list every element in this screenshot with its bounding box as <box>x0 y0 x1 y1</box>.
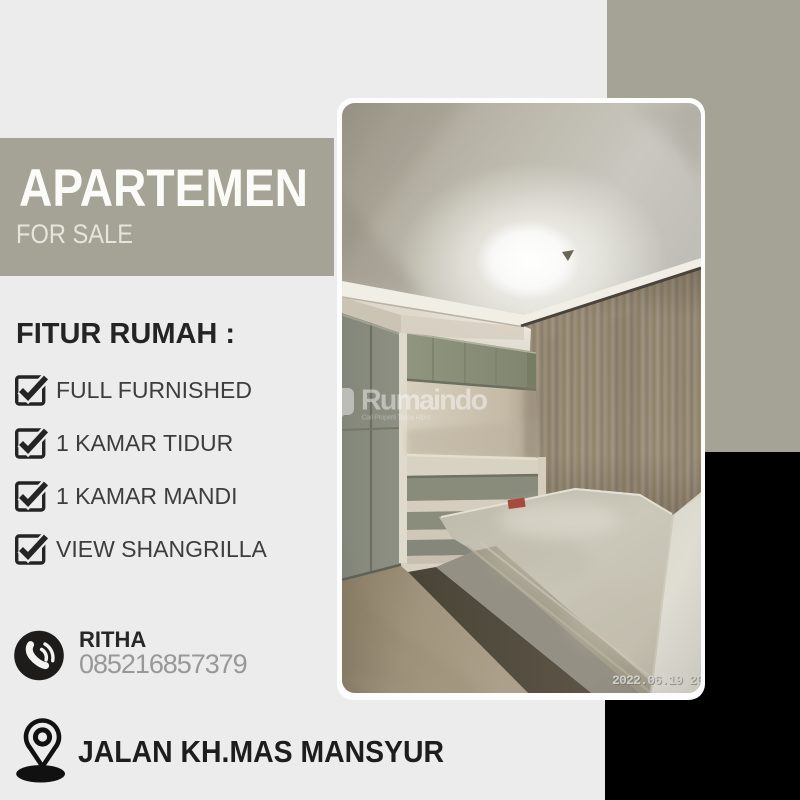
svg-text:2022.06.19 20: 2022.06.19 20 <box>612 673 704 688</box>
